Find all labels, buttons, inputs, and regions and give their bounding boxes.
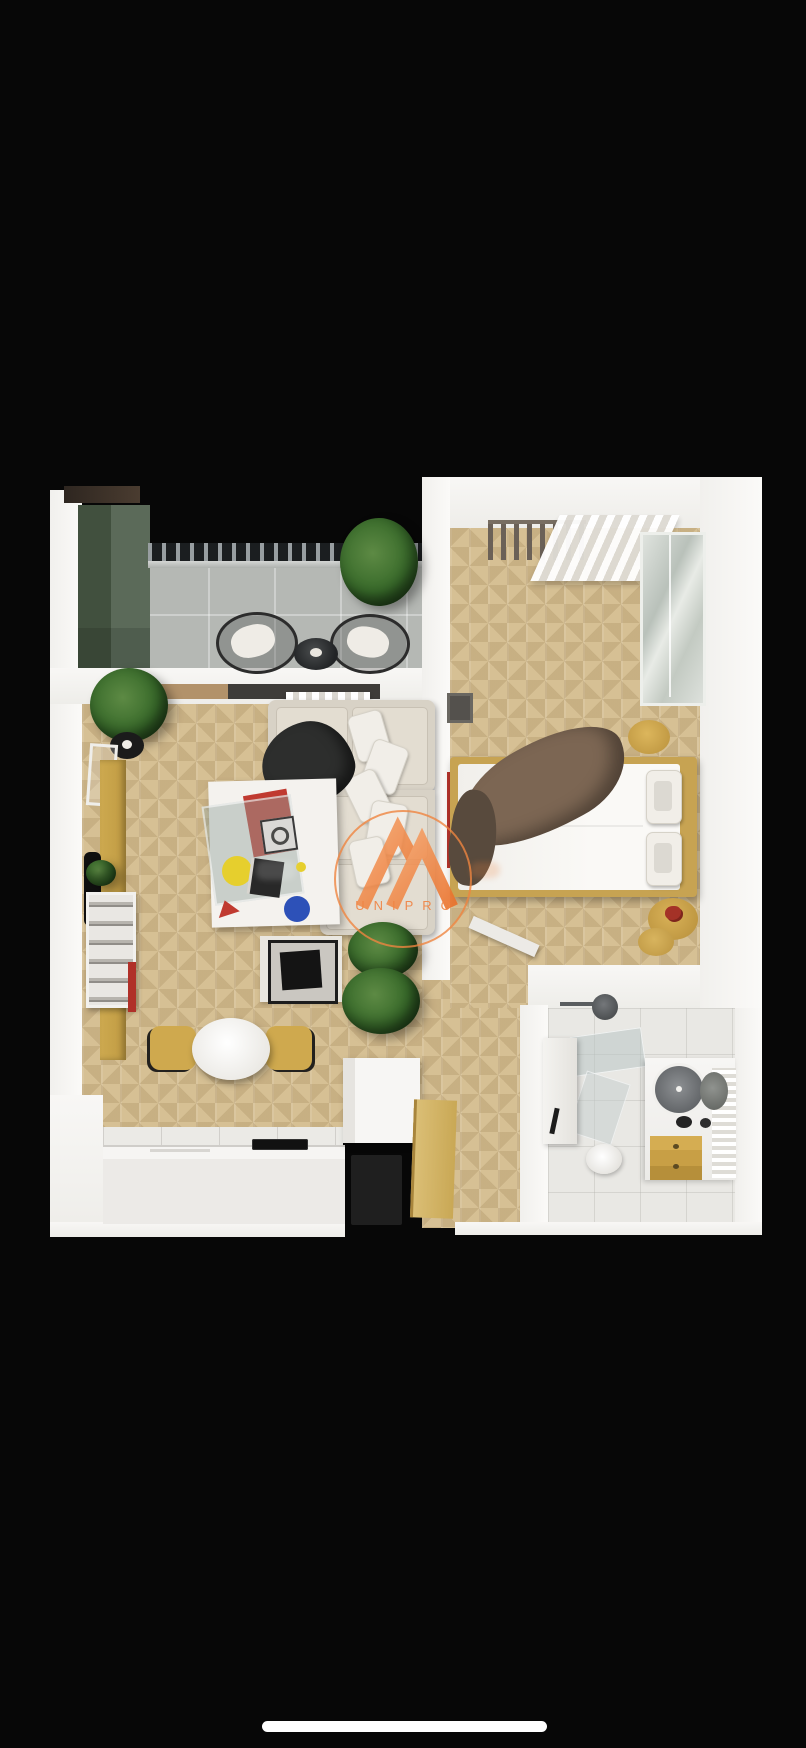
rug-yellow-dot [296, 862, 306, 872]
hallway-plant-lower [342, 968, 420, 1034]
bedroom-art-frame [447, 693, 473, 723]
cooktop [252, 1139, 308, 1150]
chair-cushion [344, 623, 391, 661]
dining-chair-right [266, 1026, 312, 1070]
table-decor [310, 648, 322, 657]
pillow-inset [654, 781, 672, 811]
balcony-side-table [294, 638, 338, 670]
balcony-plant [340, 518, 418, 606]
sink-round-large [655, 1066, 703, 1113]
bedside-pouf-small [638, 928, 674, 956]
wardrobe-glass [640, 532, 706, 706]
wardrobe-divider [669, 535, 671, 697]
watermark: UNIPRO [318, 806, 488, 951]
coffee-cup [122, 740, 132, 749]
balcony-chair-left [216, 612, 298, 674]
dining-chair-left [150, 1026, 196, 1070]
balcony-chair-right [330, 614, 410, 674]
kitchen-counter [103, 1145, 345, 1224]
bath-accessory-dark [676, 1116, 692, 1128]
bed-pillow-top [646, 770, 682, 824]
rug-blue-circle [284, 896, 310, 922]
drawer-knob [673, 1164, 679, 1169]
shelf-plant-small [86, 860, 116, 886]
bath-accessory-dark-2 [700, 1118, 711, 1128]
gold-drawer-unit [650, 1136, 702, 1180]
bedroom-doorway-floor [450, 965, 528, 1008]
wall-right-lower [735, 1008, 762, 1235]
wall-right [700, 477, 762, 1008]
entry-door [410, 1099, 457, 1218]
balcony-top-beam [64, 486, 140, 503]
shower-head [592, 994, 618, 1020]
watermark-smudge-left [256, 860, 296, 880]
bookshelf-red-strip [128, 962, 136, 1012]
faucet-dot [676, 1086, 682, 1092]
rug-yellow-circle [222, 856, 252, 886]
phone-screen: UNIPRO [0, 0, 806, 1748]
watermark-brand-text: UNIPRO [323, 898, 483, 913]
pillow-inset [654, 843, 672, 873]
counter-handle [150, 1149, 210, 1152]
kitchen-island [343, 1058, 420, 1143]
toilet [586, 1144, 622, 1174]
watermark-logo-icon [318, 806, 488, 951]
bedside-pouf-top [628, 720, 670, 754]
watermark-smudge-right [470, 862, 500, 878]
balcony-green-cabinet [78, 505, 150, 668]
sink-round-small [700, 1072, 728, 1110]
flower-decor [665, 906, 681, 920]
ring-decor [270, 826, 290, 846]
chair-cushion [228, 620, 279, 662]
living-plant-tall [90, 668, 168, 742]
dining-table [192, 1018, 270, 1080]
bathroom-tall-cabinet [543, 1038, 577, 1144]
home-indicator[interactable] [262, 1721, 547, 1732]
wall-bottom-west [50, 1222, 345, 1237]
entry-mat [351, 1155, 402, 1225]
wall-bottom-left-corner [50, 1095, 103, 1235]
black-chair-seat [280, 950, 323, 991]
bed-pillow-bottom [646, 832, 682, 886]
tray-with-ring [260, 816, 298, 854]
floor-plan-render: UNIPRO [0, 0, 806, 1748]
drawer-knob [673, 1144, 679, 1149]
wall-bottom-east [455, 1222, 762, 1235]
